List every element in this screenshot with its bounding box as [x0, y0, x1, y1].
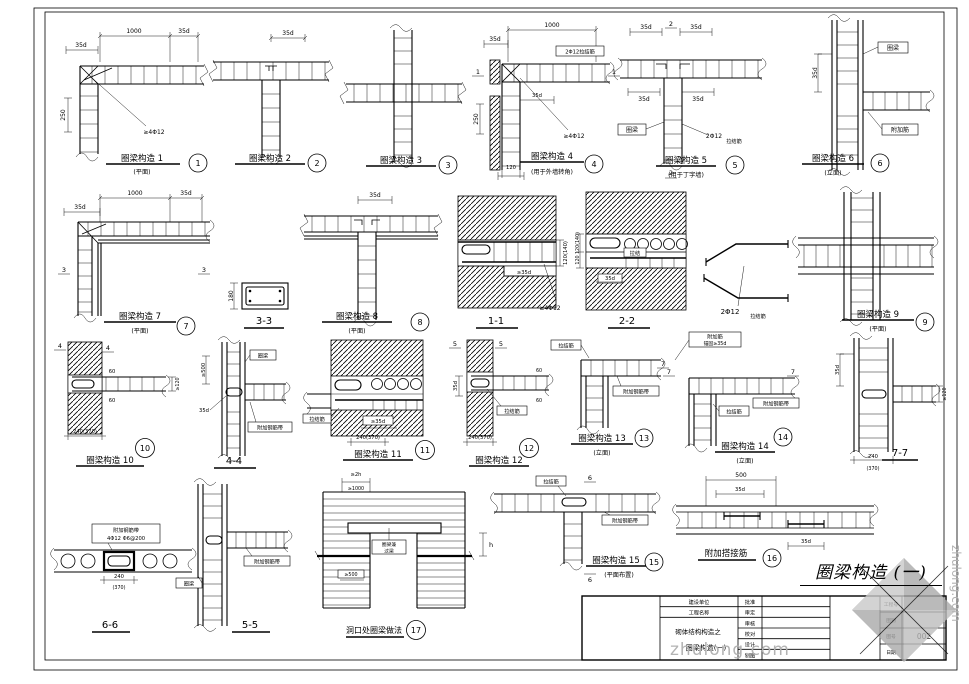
dim-label: 120(140)	[575, 232, 581, 254]
rebar-note: ≥4Φ12	[143, 129, 164, 136]
note-label: 附加钢筋带	[257, 424, 283, 432]
note-label: 圈梁	[184, 580, 194, 588]
rebar-note: ≥4Φ12	[539, 305, 560, 312]
note-label: 附加钢筋带	[623, 388, 649, 396]
dim-label: 60	[536, 398, 542, 404]
dim-label: 180	[228, 290, 235, 302]
dim-label: 35d	[801, 539, 811, 545]
detail-number: 7	[183, 322, 188, 331]
dim-label: 1000	[544, 22, 559, 29]
section-mark: 6	[588, 474, 592, 482]
dim-label: 60	[536, 368, 542, 374]
sheet-hand-title: 圈梁构造 (一)	[800, 558, 942, 586]
detail-11: 拉结筋 ≥35d 240(370) 圈梁构造 11 11	[303, 334, 441, 472]
dim-label: ≥500	[201, 363, 207, 377]
rebar-note: 拉结筋	[750, 312, 766, 320]
dim-label: 35d	[453, 381, 459, 391]
detail-title: 圈梁构造 13	[578, 433, 626, 444]
dim-label: 35d	[605, 276, 615, 282]
detail-number: 2	[314, 159, 319, 168]
section-title: 5-5	[242, 620, 258, 631]
masonry-hatch	[490, 96, 500, 170]
tb-project-label: 工程名称	[689, 609, 710, 617]
dim-label: (370)	[113, 585, 126, 591]
detail-number: 13	[639, 434, 649, 443]
detail-8: 35d 圈梁构造 8 (平面) 8	[296, 186, 446, 338]
tb-client-label: 建设单位	[689, 598, 710, 606]
section-mark: 3	[202, 266, 206, 274]
dim-label: 35d	[638, 96, 650, 103]
section-title: 1-1	[488, 316, 504, 327]
rebar-note: ≥4Φ12	[563, 133, 584, 140]
section-mark: 5	[453, 340, 457, 348]
masonry-hatch	[490, 60, 500, 84]
detail-5: 2 2 35d 35d 35d 35d 圈梁 2Φ12 拉结筋 圈梁构造 5 (…	[612, 16, 770, 184]
detail-number: 14	[778, 433, 788, 442]
detail-title: 圈梁构造 8	[336, 311, 378, 322]
dim-label: 240	[868, 454, 878, 460]
note-label: 拉结筋	[543, 478, 559, 486]
bent-bar-diagram: 2Φ12 拉结筋	[692, 206, 804, 324]
detail-title: 圈梁构造 4	[531, 151, 573, 162]
section-title: 6-6	[102, 620, 118, 631]
dim-label: ≥2h	[351, 472, 362, 478]
detail-title: 圈梁构造 14	[721, 441, 769, 452]
detail-number: 3	[445, 161, 450, 170]
watermark-text: zhulong.com	[670, 640, 790, 660]
tb-sign-row: 审核	[745, 619, 755, 627]
watermark-side-text: zhulong.com	[949, 545, 963, 680]
dim-label: 120	[506, 165, 516, 171]
section-1-1: 120(140) ≥35d ≥4Φ12 1-1	[446, 184, 574, 336]
dim-label: 60	[109, 398, 116, 404]
rebar-note: 拉结筋	[726, 137, 742, 145]
section-7-7: 35d ≥120 240 (370) 7-7	[796, 332, 944, 474]
detail-number: 8	[417, 318, 422, 327]
detail-9: 圈梁构造 9 (平面) 9	[790, 184, 942, 336]
note-label: 圈梁	[258, 352, 268, 360]
dim-label: 240	[114, 574, 124, 580]
note-label: 拉结	[630, 249, 640, 257]
detail-subtitle: (用于外墙转角)	[531, 168, 573, 176]
note-label: 拉结筋	[558, 342, 574, 350]
detail-title: 圈梁构造 10	[86, 455, 134, 466]
detail-6: 35d 圈梁 附加筋 圈梁构造 6 (立面) 6	[788, 12, 938, 184]
section-mark: 4	[58, 342, 62, 350]
rebar-note: 2Φ12	[706, 133, 722, 140]
detail-title: 圈梁构造 3	[380, 155, 422, 166]
dim-label: 35d	[692, 96, 704, 103]
note-label: 附加钢筋带	[254, 558, 280, 566]
section-mark: 5	[499, 340, 503, 348]
note-label: 拉结筋	[726, 408, 742, 416]
tb-sign-row: 校对	[745, 630, 755, 638]
section-mark: 4	[106, 344, 110, 352]
section-title: 3-3	[256, 316, 272, 327]
dim-label: 35d	[199, 408, 209, 414]
dim-label: 60	[109, 369, 116, 375]
note-label: 圈梁	[887, 44, 899, 52]
detail-number: 6	[877, 159, 882, 168]
note-label: 锚固≥35d	[704, 340, 727, 347]
detail-4: 1000 35d 1 1 250 35d 2Φ12拉结筋 ≥4Φ12 120 圈…	[468, 18, 620, 183]
detail-title: 洞口处圈梁做法	[346, 625, 402, 635]
detail-12: 5 5 35d 60 60 拉结筋 240(370) 圈梁构造 12 12	[441, 334, 559, 472]
detail-number: 11	[420, 446, 430, 455]
note-label: 附加筋	[891, 126, 909, 134]
note-label: 拉结筋	[504, 407, 520, 415]
detail-title: 圈梁构造 6	[812, 153, 854, 164]
section-title: 7-7	[892, 448, 908, 459]
detail-number: 15	[649, 558, 659, 567]
dim-label: 35d	[489, 36, 501, 43]
detail-title: 圈梁构造 12	[475, 455, 523, 466]
dim-label: 35d	[532, 93, 542, 99]
dim-label: 35d	[690, 24, 702, 31]
note-label: 附加筋	[707, 333, 723, 341]
note-label: 圈梁	[626, 126, 638, 134]
dim-label: 35d	[369, 192, 381, 199]
section-mark: 7	[791, 368, 795, 376]
rebar-note: 2Φ12	[721, 308, 740, 316]
tb-series: 砌体结构构造之	[675, 627, 721, 636]
detail-number: 10	[140, 444, 150, 453]
detail-1: 1000 35d 35d 250 ≥4Φ12 圈梁构造 1 (平面) 1	[52, 22, 212, 182]
section-3-3: 180 3-3	[212, 248, 304, 336]
detail-subtitle: (立面)	[824, 169, 841, 177]
section-mark: 2	[669, 20, 673, 28]
note-label: 圈梁兼	[382, 541, 397, 548]
dim-label: 500	[735, 472, 747, 479]
detail-title: 圈梁构造 7	[119, 311, 161, 322]
detail-number: 17	[411, 626, 421, 635]
detail-subtitle: (平面)	[133, 169, 150, 176]
detail-13: 拉结筋 7 附加钢筋带 圈梁构造 13 (立面) 13	[551, 332, 669, 472]
dim-label: 35d	[812, 67, 819, 79]
dim-label: 35d	[74, 204, 86, 211]
section-title: 4-4	[226, 456, 242, 467]
dim-label: 240(370)	[356, 435, 380, 441]
section-mark: 7	[667, 368, 671, 376]
detail-title: 圈梁构造 9	[857, 309, 899, 320]
detail-17: ≥2h ≥1000 h 圈梁兼 过梁 ≥500 洞口处圈梁做法 17	[312, 466, 504, 644]
dim-label: 1000	[127, 190, 142, 197]
dim-label: 35d	[835, 365, 841, 375]
dim-label: ≥35d	[517, 270, 531, 276]
detail-number: 1	[195, 159, 200, 168]
dim-label: 35d	[180, 190, 192, 197]
detail-subtitle: (用于丁字墙)	[668, 171, 704, 179]
detail-number: 16	[767, 554, 777, 563]
detail-number: 5	[732, 161, 737, 170]
dim-label: ≥35d	[371, 419, 385, 425]
section-mark: 1	[476, 68, 480, 76]
detail-10: 4 4 60 60 ≥120 240(370) 圈梁构造 10 10	[48, 336, 190, 474]
detail-subtitle: (平面布置)	[604, 571, 634, 579]
section-4-4: 圈梁 附加钢筋带 ≥500 35d 4-4	[180, 336, 292, 474]
detail-2: 35d 圈梁构造 2 2	[205, 22, 340, 182]
detail-14: 附加筋 锚固≥35d 7 7 拉结筋 附加钢筋带 圈梁构造 14 (立面) 14	[661, 330, 803, 472]
drawing-sheet: 1000 35d 35d 250 ≥4Φ12 圈梁构造 1 (平面) 1 35d…	[0, 0, 969, 684]
detail-7: 1000 35d 35d 3 3 圈梁构造 7 (平面) 7	[50, 186, 218, 338]
detail-title: 圈梁构造 1	[121, 153, 163, 164]
note-label: 2Φ12拉结筋	[565, 48, 595, 56]
detail-number: 9	[922, 318, 927, 327]
dim-label: 240(370)	[73, 429, 97, 435]
detail-subtitle: (立面)	[736, 457, 753, 465]
detail-subtitle: (平面)	[131, 328, 148, 335]
note-label: 过梁	[384, 548, 394, 555]
dim-label: 35d	[735, 487, 745, 493]
dim-label: 35d	[640, 24, 652, 31]
detail-15: 6 6 拉结筋 附加钢筋带 圈梁构造 15 (平面布置) 15	[486, 466, 664, 584]
detail-title: 圈梁构造 11	[354, 449, 402, 460]
section-5-5: 附加钢筋带 圈梁 5-5	[176, 476, 312, 644]
dim-label: ≥1000	[348, 486, 364, 492]
note-label: 附加钢筋带	[113, 526, 139, 534]
dim-label: 35d	[75, 42, 87, 49]
dim-label: 35d	[282, 30, 294, 37]
section-mark: 6	[588, 576, 592, 584]
dim-label: ≥120	[942, 387, 948, 400]
detail-title: 圈梁构造 2	[249, 153, 291, 164]
dim-label: 35d	[178, 28, 190, 35]
detail-number: 12	[524, 444, 534, 453]
dim-label: 120	[575, 255, 581, 264]
note-label: 附加钢筋带	[763, 400, 789, 408]
detail-3: 圈梁构造 3 3	[338, 22, 473, 182]
dim-label: 250	[473, 113, 480, 125]
section-2-2: 120(140) 120 拉结 35d 2-2	[572, 184, 710, 336]
note-label: 拉结筋	[309, 415, 325, 423]
dim-label: 1000	[126, 28, 141, 35]
dim-label: 240(370)	[468, 435, 492, 441]
tb-sign-row: 审定	[745, 609, 755, 617]
note-label: 4Φ12 Φ6@200	[107, 536, 145, 542]
tb-sign-row: 批准	[745, 598, 755, 606]
dim-label: 250	[60, 109, 67, 121]
detail-title: 圈梁构造 5	[665, 155, 707, 166]
dim-label: 120(140)	[563, 241, 569, 265]
detail-title: 圈梁构造 15	[592, 555, 640, 566]
detail-subtitle: (立面)	[593, 449, 610, 457]
dim-label: ≥500	[344, 572, 357, 578]
note-label: 附加钢筋带	[612, 517, 638, 525]
section-title: 2-2	[619, 316, 635, 327]
detail-number: 4	[591, 160, 596, 169]
detail-title: 附加搭接筋	[705, 548, 748, 559]
section-mark: 3	[62, 266, 66, 274]
